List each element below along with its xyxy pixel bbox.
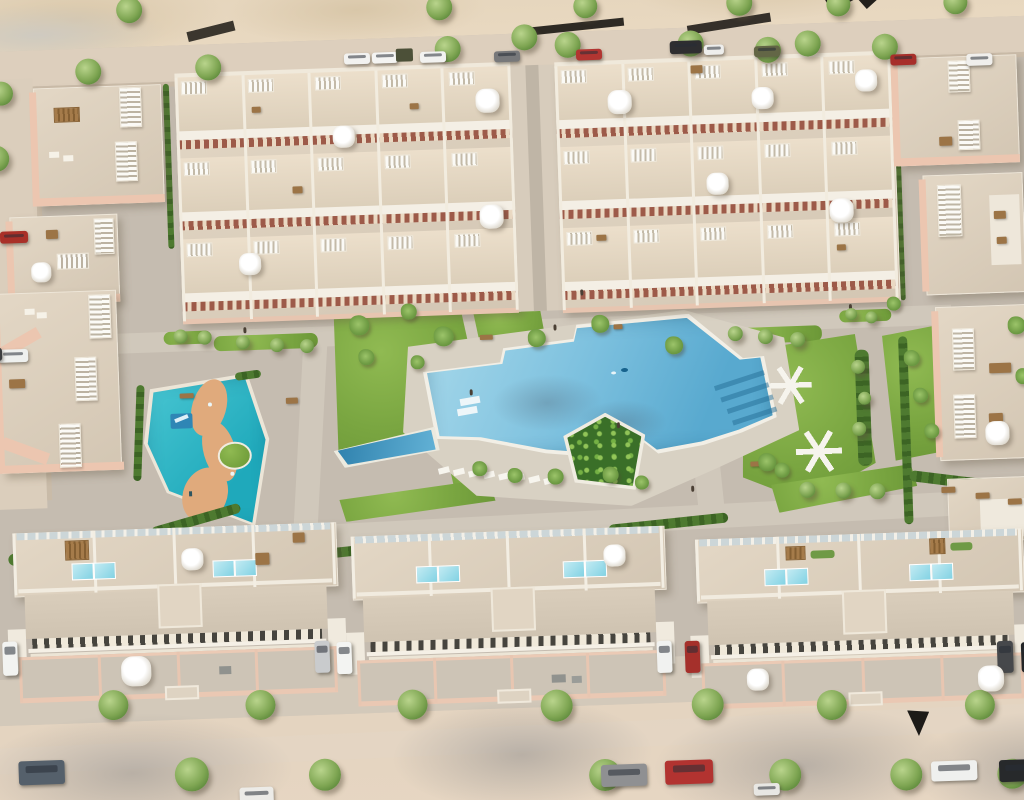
car-top-street: [344, 53, 370, 65]
palm: [1007, 316, 1024, 335]
blockA-pergola-r1-2: [248, 78, 274, 93]
car-top-street: [754, 45, 780, 57]
umbrella-blockA: [332, 125, 355, 148]
tl-b1-pergola-1: [119, 87, 142, 128]
blockB-pergola-r1-1: [561, 69, 587, 84]
blockA-pergola-r2-4: [384, 154, 410, 169]
b3-planter-1: [810, 550, 834, 559]
blockA-pergola-r3-1: [186, 242, 212, 257]
umbrella-b3-court-1: [747, 668, 770, 691]
tl-b2-pergola-1: [93, 218, 114, 255]
umbrella-blockA: [475, 88, 500, 113]
b1-ac-unit: [219, 666, 231, 674]
blockA-pergola-r3-2: [253, 240, 279, 255]
blockA-pergola-r1-3: [315, 76, 341, 91]
car-dirt-red: [665, 759, 714, 785]
palm: [913, 387, 929, 403]
lb-bench: [9, 379, 25, 389]
b1-furniture-2: [292, 532, 304, 542]
b2-entrance: [497, 689, 531, 704]
car-gap-left-edge: [2, 641, 18, 676]
palm: [349, 315, 370, 336]
lb-pergola-1: [88, 294, 112, 339]
tl-building-1: [33, 84, 165, 206]
car-top-street: [576, 49, 602, 61]
tl-b1-deck: [54, 107, 81, 123]
b3-entrance: [848, 691, 882, 706]
rb2-pergola: [937, 184, 963, 237]
rb2-table-2: [997, 237, 1007, 244]
blockB-pergola-r1-5: [828, 60, 854, 75]
blockB-table-1: [596, 235, 606, 241]
umbrella-blockB: [751, 87, 774, 110]
blockB-table-2: [690, 65, 702, 73]
blockB-pergola-r2-1: [563, 150, 589, 165]
car-gap1-white: [336, 642, 352, 675]
palm: [924, 423, 940, 439]
gym-equipment-1: [769, 368, 812, 403]
dirt-shadow-1: [0, 708, 295, 800]
palm: [410, 355, 424, 369]
b3-roof-pool-2: [786, 568, 809, 586]
gym-equipment-2: [795, 433, 842, 471]
blockA-pergola-r1-1: [181, 80, 207, 95]
aerial-render-stage: [0, 0, 1024, 800]
blockB-pergola-r3-5: [834, 222, 860, 237]
b2-roof-pool-3: [563, 561, 586, 579]
car-top-street: [372, 52, 398, 64]
rb-bench-3: [1008, 498, 1022, 504]
umbrella-b1-roof: [181, 548, 204, 571]
b2-roof-pool-1: [416, 566, 439, 584]
umbrella-blockB: [829, 198, 854, 223]
tl-b1-lounger-2: [63, 155, 73, 161]
blockB-pergola-r3-2: [633, 229, 659, 244]
palm: [774, 462, 790, 478]
tl-b2-table: [46, 230, 58, 239]
car-dirt-white-small: [754, 783, 780, 796]
umbrella-rb3: [985, 421, 1010, 446]
b1-furniture-1: [255, 553, 269, 565]
tl-b2-pergola-2: [57, 253, 90, 270]
van-left-road-white: [0, 349, 28, 363]
b1-roof-pool-2: [93, 562, 116, 580]
umbrella-b1-court: [121, 656, 152, 687]
b3-stair-housing: [842, 589, 888, 635]
umbrella-blockB: [706, 172, 729, 195]
palm: [591, 315, 610, 334]
bench-kids-pool-1: [180, 393, 194, 398]
umbrella-blockA: [239, 253, 262, 276]
rb3-table-1: [989, 363, 1011, 374]
b2-ac-unit-2: [572, 676, 582, 683]
b3-planter-2: [950, 542, 972, 551]
blockA-pergola-r1-5: [449, 71, 475, 86]
palm: [472, 461, 488, 477]
palm: [665, 336, 684, 355]
car-top-street: [890, 54, 916, 66]
lb-vent-2: [37, 312, 47, 318]
b3-pergola-brown-2: [929, 538, 946, 555]
lb-vent-1: [25, 309, 35, 315]
umbrella-b2-roof: [603, 544, 626, 567]
b1-roof-pool-1: [71, 563, 94, 581]
blockA-pergola-r2-2: [250, 159, 276, 174]
car-top-street: [494, 51, 520, 63]
van-top-street: [966, 53, 992, 66]
lb-pergola-3: [59, 423, 83, 468]
tl-b1-lounger-1: [49, 152, 59, 158]
car-dirt-gray: [601, 764, 648, 788]
car-top-street: [420, 51, 446, 63]
b3-roof-pool-4: [931, 563, 954, 581]
person: [691, 486, 694, 492]
rb2-terrace: [989, 194, 1021, 265]
rb3-pergola-2: [953, 394, 977, 439]
kids-pool-swimmer: [189, 491, 192, 496]
blockA-table-2: [410, 103, 419, 109]
blockB-pergola-r3-3: [700, 226, 726, 241]
blockA-pergola-r2-5: [451, 152, 477, 167]
blockA-table-3: [252, 107, 261, 113]
blockB-pergola-r1-4: [761, 62, 787, 77]
tl-b1-pergola-2: [115, 141, 138, 182]
car-top-street: [704, 44, 724, 55]
car-gap2-red: [685, 641, 701, 674]
blockB-table-3: [837, 244, 846, 250]
blockA-pergola-r2-3: [317, 157, 343, 172]
palm: [887, 296, 901, 310]
palm: [635, 475, 649, 489]
b3-roof-pool-1: [764, 569, 787, 587]
blockB-pergola-r3-4: [767, 224, 793, 239]
b1-roof-pool-4: [234, 559, 257, 577]
umbrella-blockB: [607, 90, 632, 115]
person: [243, 327, 246, 333]
blockA-pergola-r3-3: [320, 238, 346, 253]
bench-park-2: [613, 324, 622, 329]
person: [617, 422, 620, 428]
dumpster: [396, 48, 413, 62]
car-gap2-white: [657, 641, 673, 674]
umbrella-blockA: [479, 204, 504, 229]
blockB-pergola-r2-4: [764, 143, 790, 158]
palm: [547, 468, 564, 485]
rb-bench-2: [976, 492, 990, 498]
lb-pergola-2: [74, 356, 98, 401]
blockA-pergola-r3-4: [387, 235, 413, 250]
aerial-render-scene: [0, 0, 1024, 800]
b1-pergola-brown: [65, 540, 90, 561]
bench-park-1: [480, 335, 493, 340]
car-dirt-white: [931, 760, 978, 782]
palm: [433, 326, 454, 347]
car-dirt-white-partial: [239, 787, 274, 800]
rb3-pergola-1: [952, 328, 975, 371]
person: [580, 289, 583, 295]
blockA-pergola-r3-5: [454, 233, 480, 248]
car-dirt-darkblue: [18, 760, 65, 786]
umbrella-tl: [31, 262, 52, 283]
b2-roof-pool-2: [438, 565, 461, 583]
blockB-pergola-r2-2: [630, 148, 656, 163]
bench-kids-pool-2: [286, 397, 298, 403]
car-gap1-silver: [314, 641, 330, 674]
car-left-road-red: [0, 231, 28, 244]
blockA-pergola-r2-1: [184, 161, 210, 176]
palm: [904, 350, 921, 367]
car-dirt-black: [999, 759, 1024, 782]
b1-entrance: [165, 685, 199, 700]
van-top-street: [670, 40, 702, 54]
palm: [507, 468, 523, 484]
b2-ac-unit-1: [552, 674, 566, 682]
person: [553, 324, 556, 330]
rb1-pergola-2: [958, 120, 981, 151]
palm: [1015, 368, 1024, 385]
umbrella-b3-court-2: [978, 665, 1005, 692]
b1-stair-housing: [157, 583, 203, 629]
rb2-table-1: [994, 211, 1006, 219]
blockB-pergola-r1-2: [627, 67, 653, 82]
b3-roof-pool-3: [909, 563, 932, 581]
rb1-table: [939, 136, 952, 145]
person: [470, 389, 473, 395]
rb-bench-1: [941, 487, 955, 493]
b1-roof-pool-3: [212, 560, 235, 578]
blockA-pergola-r1-4: [382, 73, 408, 88]
blockB-pergola-r3-1: [566, 231, 592, 246]
palm: [401, 303, 418, 320]
blockB-pergola-r2-3: [697, 145, 723, 160]
blockB-pergola-r2-5: [831, 141, 857, 156]
b2-stair-housing: [491, 586, 537, 632]
umbrella-blockB: [855, 69, 878, 92]
blockA-table-1: [292, 186, 302, 193]
b3-pergola-brown-1: [785, 546, 805, 561]
